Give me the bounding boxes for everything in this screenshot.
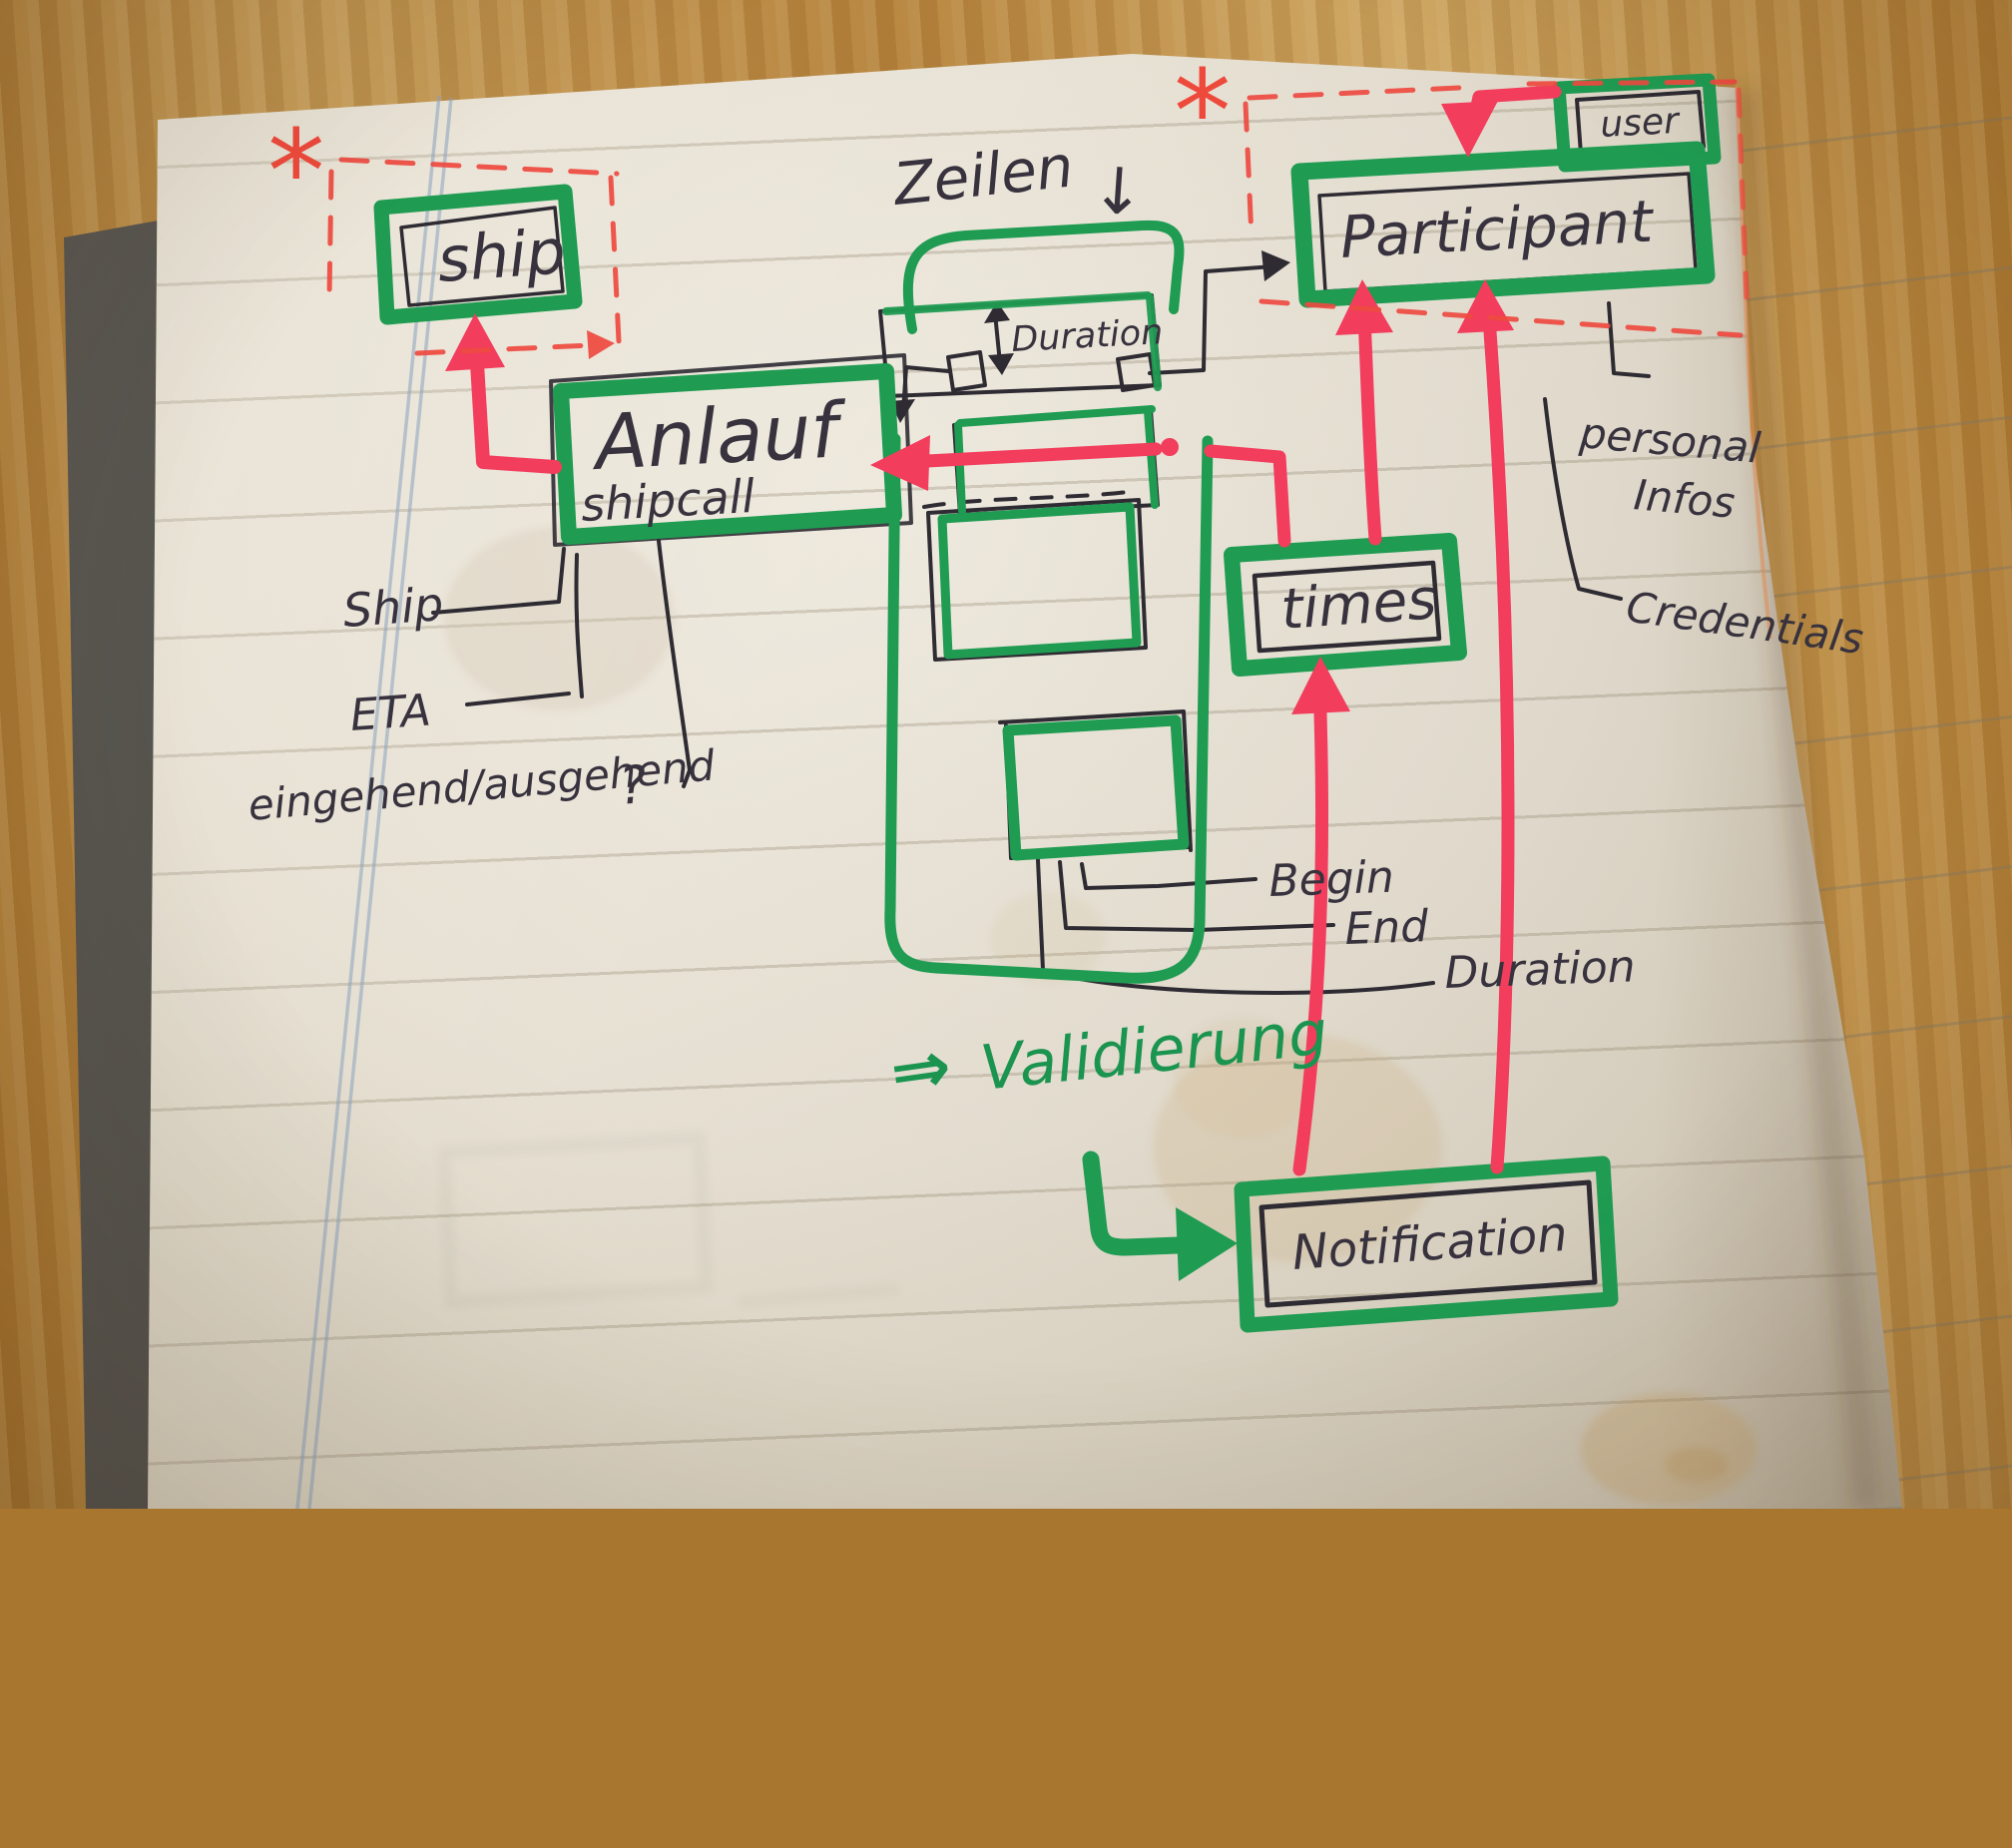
connector-begin bbox=[1082, 864, 1256, 888]
row-box-1-accent-top bbox=[960, 409, 1152, 423]
connector-personal-infos bbox=[1609, 303, 1649, 376]
duration-arrowhead-down bbox=[988, 353, 1014, 375]
fold-shadow bbox=[1745, 90, 1866, 1509]
validierung-arrow: ⇒ bbox=[885, 1023, 956, 1115]
participant-box-label: Participant bbox=[1338, 188, 1656, 271]
participant-dashed-top-left bbox=[1250, 88, 1459, 98]
water-stain bbox=[444, 527, 674, 710]
ghost-mark bbox=[739, 1289, 898, 1302]
asterisk-ship: * bbox=[267, 106, 325, 239]
user-box-label: user bbox=[1599, 101, 1682, 146]
ghost-rect bbox=[444, 1138, 707, 1302]
ship-attr-label: Ship bbox=[341, 577, 445, 638]
personal-infos-line2: Infos bbox=[1632, 470, 1737, 528]
sketch-diagram: ship Anlauf shipcall Duration Participan… bbox=[0, 0, 2012, 1509]
shipcall-box-sublabel: shipcall bbox=[580, 469, 756, 532]
asterisk-participant: * bbox=[1174, 46, 1232, 180]
duration-handle-left bbox=[948, 352, 985, 390]
ship-dashed-arrowhead bbox=[587, 330, 615, 359]
row-box-1-accent-left bbox=[958, 425, 962, 511]
stain-bottom-right-dark bbox=[1665, 1447, 1729, 1483]
ship-dashed-bottom bbox=[417, 345, 591, 353]
connector-duration-to-participant bbox=[1150, 266, 1273, 373]
arrow-times-elbow bbox=[1211, 451, 1284, 541]
arrowhead-into-participant bbox=[1261, 250, 1290, 281]
ship-dashed-left bbox=[329, 172, 331, 295]
paper-stains bbox=[444, 527, 1757, 1505]
zeilen-down-arrow: ↓ bbox=[1089, 154, 1148, 231]
question-mark: ? bbox=[617, 755, 650, 817]
ship-dashed-top bbox=[341, 160, 617, 174]
page-edge-detail bbox=[1737, 86, 1866, 1509]
duration-attr-label: Duration bbox=[1444, 941, 1637, 999]
ship-dashed-right bbox=[611, 178, 619, 341]
duration-accent-top bbox=[886, 295, 1148, 311]
red-dot bbox=[1161, 438, 1179, 456]
row-box-2-green bbox=[942, 507, 1137, 655]
zeilen-annotation: Zeilen bbox=[888, 132, 1076, 219]
ink-bleed-ghosts bbox=[444, 1138, 898, 1302]
duration-box-label: Duration bbox=[1010, 312, 1164, 360]
end-label: End bbox=[1344, 901, 1430, 955]
stain-bottom-right bbox=[1581, 1393, 1757, 1505]
row-box-3-green bbox=[1008, 720, 1184, 855]
notebook-photo: ship Anlauf shipcall Duration Participan… bbox=[0, 0, 2012, 1509]
arrow-times-to-participant bbox=[1364, 317, 1375, 539]
begin-label: Begin bbox=[1268, 852, 1395, 907]
arrowhead-into-ship bbox=[445, 313, 505, 371]
row-box-2-pen bbox=[928, 500, 1146, 660]
ship-box-label: ship bbox=[435, 215, 568, 296]
eta-attr-label: ETA bbox=[348, 685, 432, 741]
participant-dashed-left bbox=[1246, 104, 1252, 237]
arrowhead-into-participant-top bbox=[1441, 101, 1498, 158]
personal-infos-line1: personal bbox=[1577, 408, 1762, 473]
credentials-label: Credentials bbox=[1624, 582, 1866, 664]
arrow-notification-to-participant bbox=[1489, 317, 1508, 1167]
times-box-label: times bbox=[1278, 567, 1438, 643]
arrow-times-to-shipcall-horizontal bbox=[908, 449, 1156, 462]
